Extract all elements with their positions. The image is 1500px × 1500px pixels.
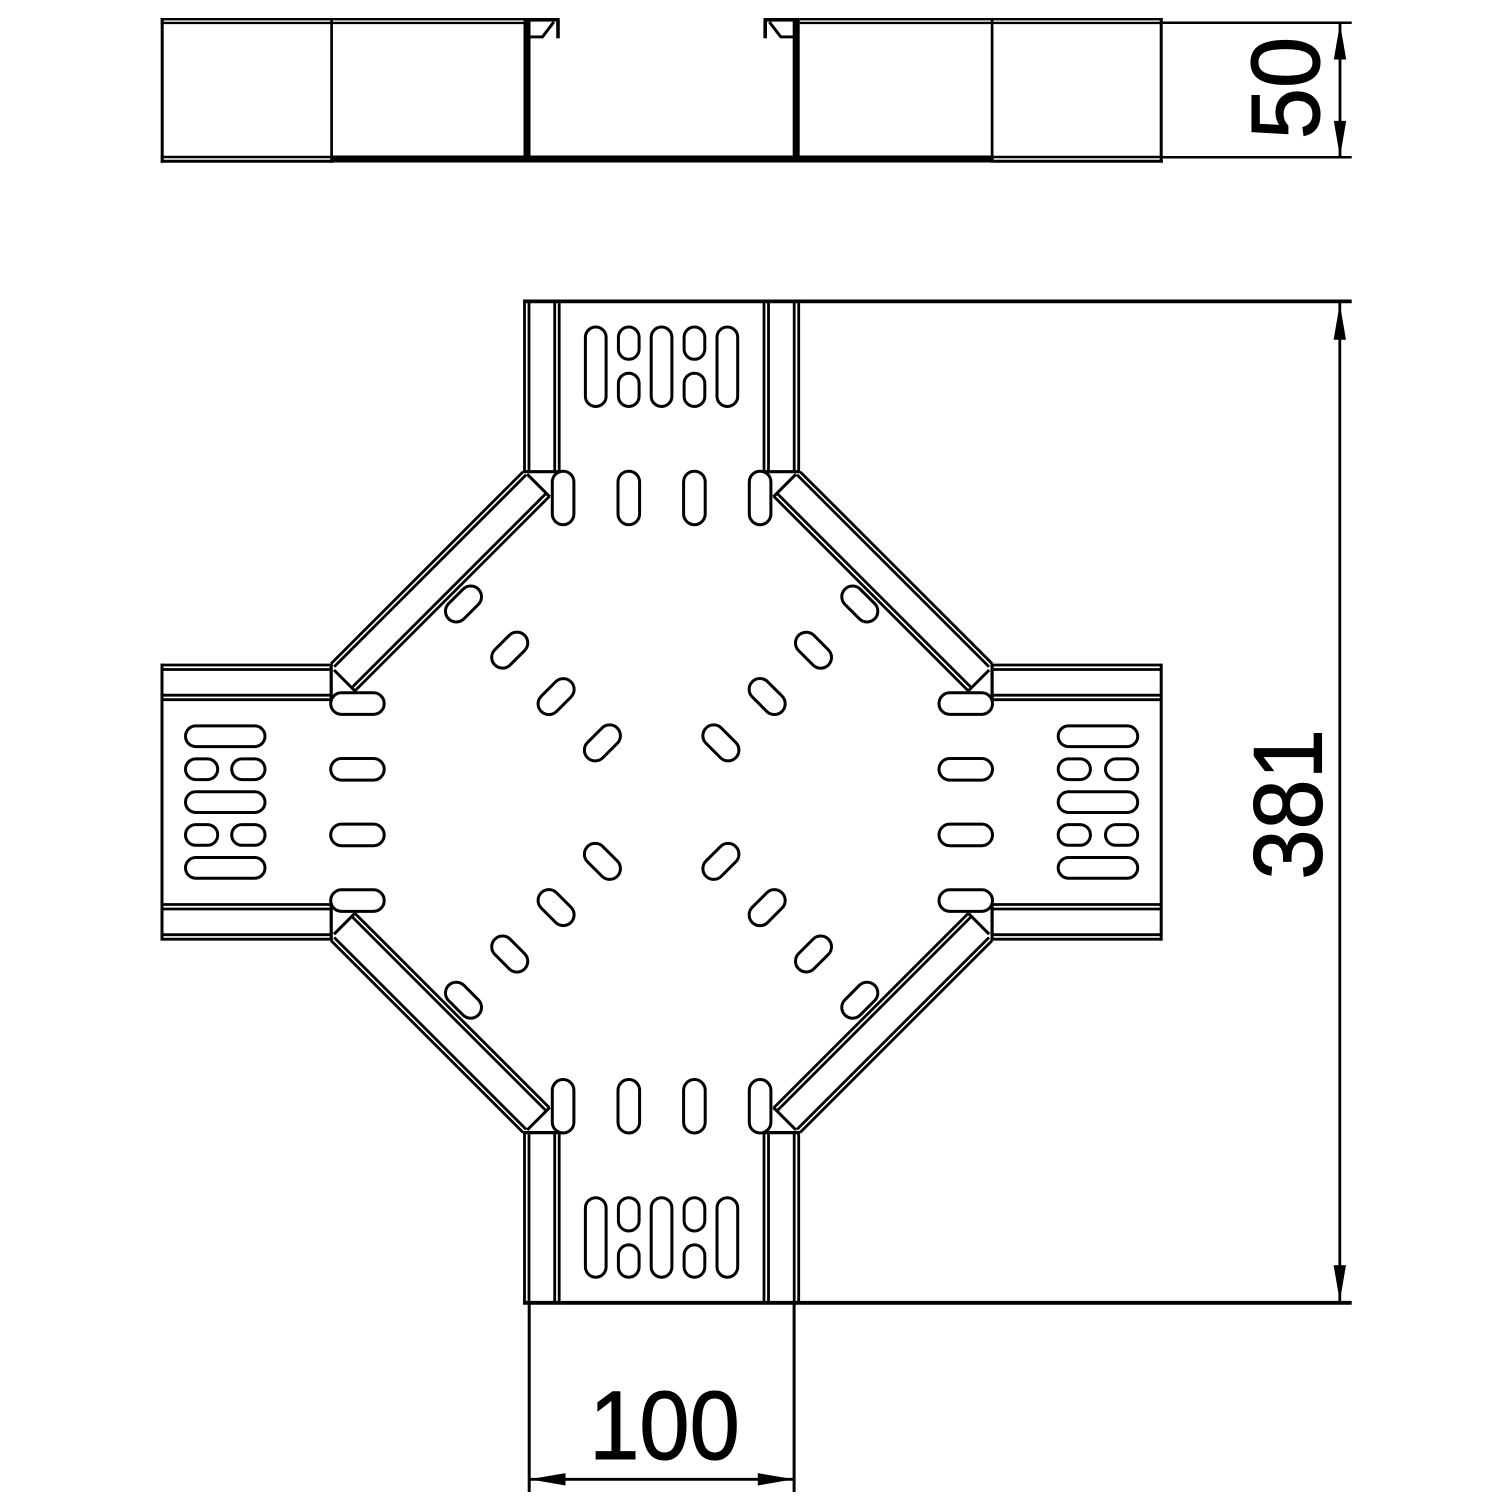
svg-text:381: 381 [1233,729,1342,879]
svg-text:50: 50 [1232,37,1341,139]
svg-text:100: 100 [589,1371,739,1480]
